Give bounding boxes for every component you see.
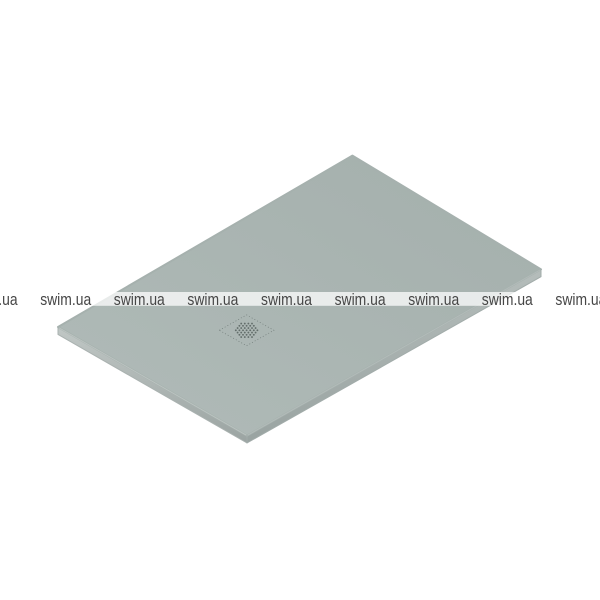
svg-text:swim.ua: swim.ua (187, 290, 238, 309)
svg-text:swim.ua: swim.ua (335, 290, 386, 309)
svg-text:swim.ua: swim.ua (40, 290, 91, 309)
svg-text:swim.ua: swim.ua (408, 290, 459, 309)
svg-text:swim.ua: swim.ua (555, 290, 600, 309)
svg-text:swim.ua: swim.ua (0, 290, 18, 309)
svg-text:swim.ua: swim.ua (114, 290, 165, 309)
svg-text:swim.ua: swim.ua (482, 290, 533, 309)
svg-text:swim.ua: swim.ua (261, 290, 312, 309)
